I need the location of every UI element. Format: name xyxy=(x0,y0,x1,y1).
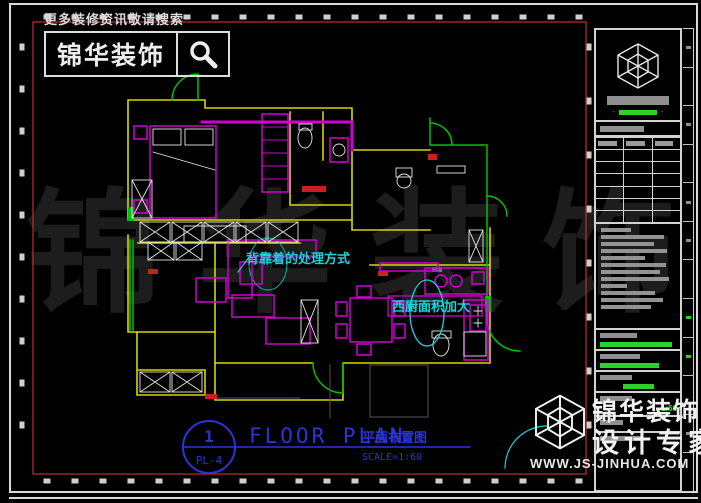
table-row xyxy=(596,150,680,162)
table-row xyxy=(596,199,680,211)
green-text-bar xyxy=(600,363,659,368)
edge-cell xyxy=(683,29,693,68)
redacted-text-bar xyxy=(601,270,660,274)
edge-cell xyxy=(683,299,693,338)
footer-brand-watermark: 锦华装饰 设计专家 WWW.JS-JINHUA.COM xyxy=(530,390,700,482)
brand-logo-text: 锦华装饰 xyxy=(46,33,178,75)
plan-scale: SCALE=1:60 xyxy=(362,452,422,463)
table-cell xyxy=(596,174,624,185)
table-cell xyxy=(596,162,624,173)
logo-caption-bar xyxy=(607,96,669,105)
edge-cell xyxy=(683,145,693,184)
search-hint-text: 更多装修资讯敬请搜索 xyxy=(44,9,184,28)
table-cell xyxy=(596,187,624,198)
table-row xyxy=(596,138,680,150)
table-cell xyxy=(624,199,652,210)
redacted-text-bar xyxy=(601,263,666,267)
revision-table xyxy=(596,137,680,224)
plan-title-cn: 平面布置图 xyxy=(362,430,427,446)
redacted-text-bar xyxy=(601,298,663,302)
table-cell xyxy=(596,138,624,149)
edge-cell xyxy=(683,106,693,145)
notes-section xyxy=(596,224,680,330)
logo-green-caption: -- xyxy=(613,109,664,116)
redacted-text-bar xyxy=(601,284,627,288)
redacted-text-bar xyxy=(601,256,645,260)
cad-sheet: 锦 华 装 饰 xyxy=(0,0,701,503)
table-row xyxy=(596,162,680,174)
table-cell xyxy=(653,211,680,222)
annotation-backrest-text: 背靠着的处理方式 xyxy=(246,251,350,267)
detail-number: 1 xyxy=(204,427,214,446)
table-row xyxy=(596,187,680,199)
footer-brand-website: WWW.JS-JINHUA.COM xyxy=(530,456,689,471)
edge-cell xyxy=(683,68,693,107)
table-cell xyxy=(624,138,652,149)
table-cell xyxy=(596,150,624,161)
redacted-text-bar xyxy=(601,305,651,309)
info-row xyxy=(596,330,680,351)
cube-logo-icon xyxy=(532,392,588,452)
table-cell xyxy=(653,162,680,173)
green-text-bar xyxy=(600,342,672,347)
redacted-text-bar xyxy=(601,242,654,246)
redacted-text-bar xyxy=(601,291,655,295)
redacted-text-bar xyxy=(601,235,664,239)
table-cell xyxy=(653,138,680,149)
table-cell xyxy=(653,199,680,210)
edge-cell xyxy=(683,260,693,299)
cube-logo-icon xyxy=(615,41,661,91)
table-cell xyxy=(596,199,624,210)
table-cell xyxy=(624,174,652,185)
green-text-bar xyxy=(623,384,654,389)
edge-cell xyxy=(683,222,693,261)
title-block-section-label xyxy=(596,122,680,137)
redacted-text-bar xyxy=(601,277,669,281)
redacted-text-bar xyxy=(601,249,667,253)
table-cell xyxy=(653,174,680,185)
magnifier-icon xyxy=(178,33,228,75)
edge-cell xyxy=(683,338,693,377)
table-cell xyxy=(624,150,652,161)
construction-gray xyxy=(216,365,428,418)
table-cell xyxy=(596,211,624,222)
edge-cell xyxy=(683,183,693,222)
table-row xyxy=(596,174,680,186)
title-block-logo: -- xyxy=(596,30,680,122)
table-row xyxy=(596,211,680,222)
drawing-title: 1 PL-4 FLOOR PLAN 平面布置图 SCALE=1:60 xyxy=(183,421,470,473)
furniture-magenta xyxy=(134,114,488,360)
sheet-code: PL-4 xyxy=(196,454,223,467)
table-cell xyxy=(624,162,652,173)
redacted-text-bar xyxy=(601,228,631,232)
table-cell xyxy=(653,187,680,198)
table-cell xyxy=(624,211,652,222)
table-cell xyxy=(653,150,680,161)
brand-search-box: 锦华装饰 xyxy=(44,31,230,77)
annotation-kitchen-text: 西厨面积加大 xyxy=(392,299,470,315)
table-cell xyxy=(624,187,652,198)
footer-brand-tagline: 设计专家 xyxy=(592,421,701,460)
info-row xyxy=(596,351,680,372)
